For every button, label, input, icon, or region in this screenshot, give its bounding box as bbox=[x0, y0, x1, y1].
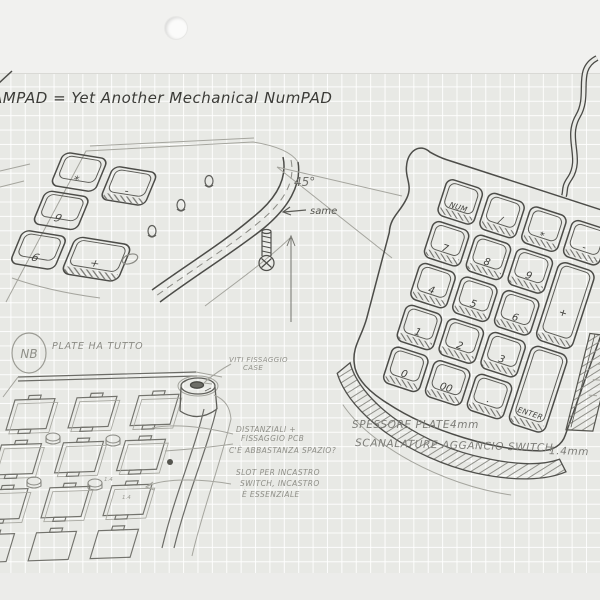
scanned-sketch-page: { "colors": { "paper_grid": "#e8e9e5", "… bbox=[0, 0, 600, 600]
graph-paper bbox=[0, 73, 600, 574]
punch-hole bbox=[165, 17, 187, 39]
paper-bottom-margin bbox=[0, 573, 600, 600]
